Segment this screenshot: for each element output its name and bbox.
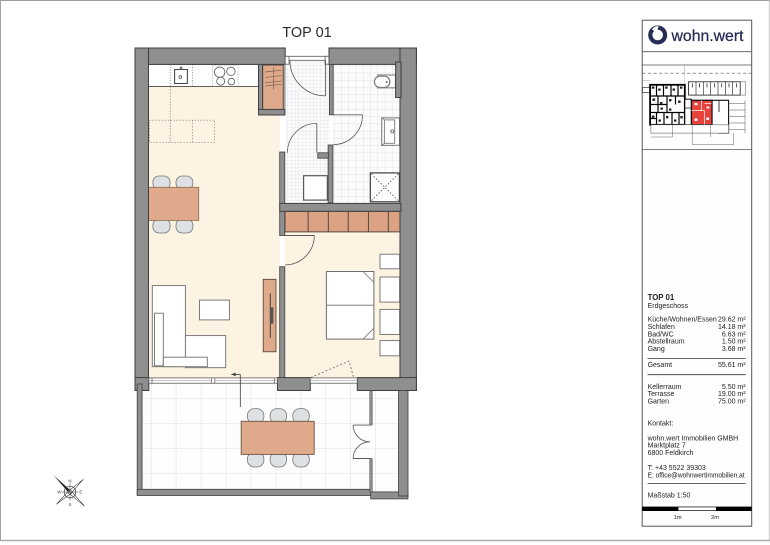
svg-text:Bad/WC: Bad/WC	[648, 331, 674, 338]
svg-text:Erdgeschoss: Erdgeschoss	[648, 303, 689, 310]
svg-text:2m: 2m	[711, 515, 719, 521]
svg-text:E: office@wohnwertimmobilien.a: E: office@wohnwertimmobilien.at	[648, 472, 745, 479]
svg-text:N: N	[68, 478, 71, 483]
svg-text:S: S	[69, 502, 72, 507]
svg-text:T: +43 5522 39303: T: +43 5522 39303	[648, 465, 706, 472]
svg-text:E: E	[79, 490, 82, 495]
svg-text:6800 Feldkirch: 6800 Feldkirch	[648, 450, 694, 457]
svg-text:29.62 m²: 29.62 m²	[718, 317, 746, 324]
svg-text:Küche/Wohnen/Essen: Küche/Wohnen/Essen	[648, 317, 717, 324]
svg-text:75.00 m²: 75.00 m²	[718, 399, 746, 406]
svg-text:wohn.wert Immobilien GMBH: wohn.wert Immobilien GMBH	[647, 435, 739, 442]
svg-text:14.18 m²: 14.18 m²	[718, 324, 746, 331]
svg-text:1m: 1m	[673, 515, 681, 521]
svg-text:TOP 01: TOP 01	[282, 25, 331, 41]
svg-text:Gang: Gang	[648, 346, 665, 353]
svg-text:Marktplatz 7: Marktplatz 7	[648, 443, 686, 450]
svg-text:Garten: Garten	[648, 399, 670, 406]
svg-text:Maßstab 1:50: Maßstab 1:50	[648, 493, 691, 500]
svg-text:5.50 m²: 5.50 m²	[722, 384, 746, 391]
svg-text:Schlafen: Schlafen	[648, 324, 675, 331]
svg-text:TOP 01: TOP 01	[648, 293, 675, 302]
svg-text:6.63 m²: 6.63 m²	[722, 331, 746, 338]
svg-text:19.00 m²: 19.00 m²	[718, 391, 746, 398]
svg-text:3.68 m²: 3.68 m²	[722, 346, 746, 353]
svg-text:55.61 m²: 55.61 m²	[718, 362, 746, 369]
svg-text:wohn.wert: wohn.wert	[671, 28, 745, 45]
svg-text:Gesamt: Gesamt	[648, 362, 673, 369]
svg-text:1.50 m²: 1.50 m²	[722, 339, 746, 346]
svg-text:Kontakt:: Kontakt:	[648, 421, 674, 428]
svg-text:Abstellraum: Abstellraum	[648, 339, 685, 346]
svg-text:Terrasse: Terrasse	[648, 391, 675, 398]
svg-text:Kellerraum: Kellerraum	[648, 384, 682, 391]
